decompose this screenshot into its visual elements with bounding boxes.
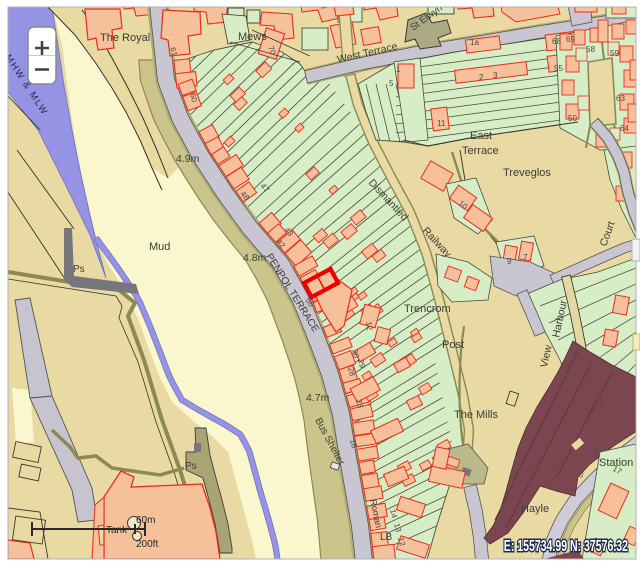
svg-text:Terrace: Terrace [462,145,499,157]
svg-text:Ps: Ps [185,461,197,472]
svg-text:3: 3 [493,71,498,80]
svg-text:200ft: 200ft [136,539,158,550]
svg-text:Hayle: Hayle [521,503,549,515]
svg-text:11: 11 [437,119,446,128]
svg-text:The Royal: The Royal [100,32,150,44]
svg-text:60m: 60m [136,515,155,526]
svg-text:50: 50 [568,114,577,123]
svg-text:Post: Post [442,339,464,351]
svg-text:1a: 1a [470,38,479,47]
svg-text:4.8m: 4.8m [243,252,267,264]
svg-text:5: 5 [389,79,394,88]
svg-text:Mews: Mews [238,31,267,43]
svg-text:9: 9 [507,257,512,266]
svg-text:4.9m: 4.9m [176,153,200,165]
svg-text:Tank: Tank [106,525,128,536]
svg-text:LB: LB [380,532,393,543]
svg-text:58: 58 [586,45,595,54]
svg-text:2: 2 [479,73,484,82]
svg-text:55: 55 [554,64,563,73]
svg-text:59: 59 [610,49,619,58]
svg-text:Trencrom: Trencrom [404,303,451,315]
svg-text:Ps: Ps [73,264,85,275]
svg-text:69: 69 [566,35,575,44]
svg-text:1: 1 [396,65,401,74]
svg-text:7: 7 [523,253,528,262]
svg-text:64: 64 [620,124,629,133]
svg-text:4.7m: 4.7m [306,392,330,404]
svg-text:63: 63 [616,94,625,103]
svg-text:Treveglos: Treveglos [503,167,551,179]
svg-text:E: 155734.99 N: 37576.32: E: 155734.99 N: 37576.32 [504,537,628,555]
svg-text:68: 68 [552,37,561,46]
svg-text:The Mills: The Mills [454,409,499,421]
svg-text:East: East [470,130,492,142]
svg-text:Mud: Mud [149,241,170,253]
